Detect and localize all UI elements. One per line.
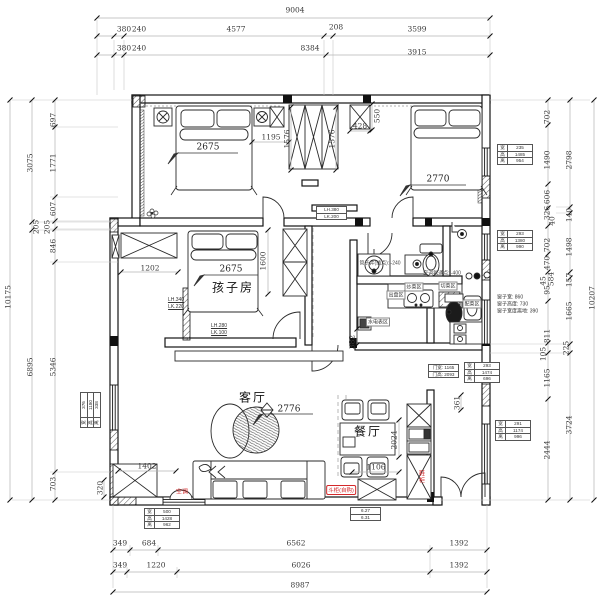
plant-icon	[147, 209, 158, 218]
toilet2-icon	[445, 294, 463, 324]
rug-icon	[211, 403, 279, 458]
bed-children	[183, 231, 263, 316]
floor-plan-canvas	[0, 0, 600, 600]
side-cabinet-icon	[358, 479, 396, 500]
hall-cabinet-icon	[407, 404, 431, 499]
dining-table	[340, 400, 395, 477]
sofa	[193, 461, 325, 499]
tv-console	[175, 351, 343, 361]
pipe-shaft-icon	[358, 249, 429, 276]
stove-icon	[404, 290, 433, 307]
bed-second	[406, 106, 487, 195]
floor-plan: 9004380240457720835993802408384391534968…	[0, 0, 600, 600]
vanity-icon	[450, 322, 482, 344]
point-markers	[466, 272, 490, 279]
basin-icon	[464, 296, 481, 320]
ac-niche	[170, 490, 192, 499]
bed-master	[171, 106, 257, 195]
meter-box-icon	[358, 317, 371, 330]
